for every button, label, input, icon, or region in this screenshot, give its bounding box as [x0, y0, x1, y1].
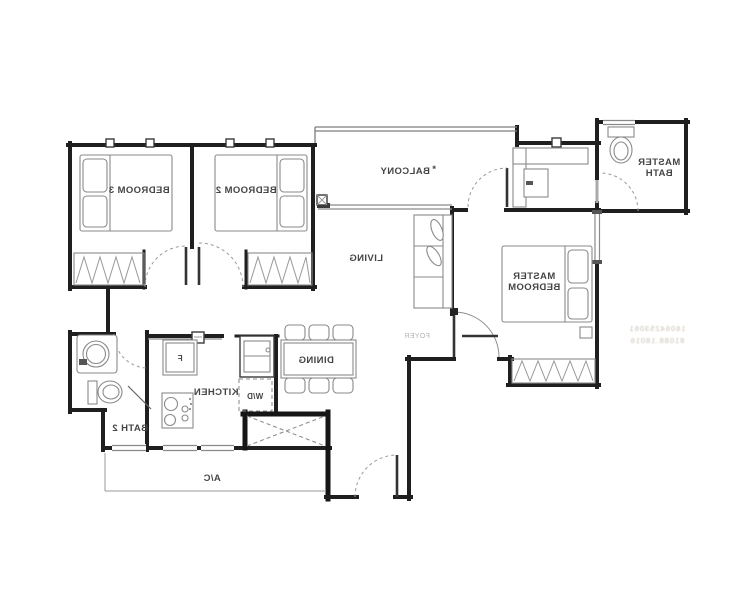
room-bedroom2: BEDROOM 2	[215, 155, 312, 285]
washer-dryer-icon: W/D	[239, 379, 272, 411]
label-fridge: F	[177, 354, 182, 363]
floorplan-page: BEDROOM 3 BEDROOM 2 BALCONY * LIVING	[0, 0, 732, 600]
label-ac-ledge: A/C	[203, 473, 221, 484]
balcony-asterisk: *	[432, 164, 436, 175]
fridge-icon: F	[163, 340, 197, 375]
room-master-bath: MASTER BATH	[608, 127, 680, 179]
sofa-icon	[414, 215, 452, 308]
label-bath2: BATH 2	[112, 423, 148, 434]
floorplan-svg: BEDROOM 3 BEDROOM 2 BALCONY * LIVING	[0, 0, 732, 600]
label-kitchen: KITCHEN	[193, 387, 238, 398]
watermark-line1: 16064253061	[629, 324, 686, 333]
wardrobe-icon	[512, 359, 595, 383]
watermark-line2: 81088.18016	[630, 336, 685, 345]
label-master-bedroom-line2: BEDROOM	[508, 282, 560, 293]
room-living: LIVING	[349, 215, 452, 308]
label-foyer: FOYER	[404, 333, 430, 340]
room-bath2: BATH 2	[77, 335, 148, 434]
toilet-icon	[88, 381, 122, 404]
ac-ledge: A/C	[105, 453, 326, 491]
toilet-icon	[608, 127, 634, 163]
foyer: FOYER	[404, 333, 430, 340]
label-bedroom3: BEDROOM 3	[108, 185, 169, 196]
sliding-door	[317, 203, 452, 209]
room-bedroom3: BEDROOM 3	[74, 155, 172, 285]
label-balcony: BALCONY	[380, 166, 430, 177]
label-bedroom2: BEDROOM 2	[215, 185, 276, 196]
label-dining: DINING	[298, 355, 334, 366]
kitchen-sink-icon	[240, 336, 274, 377]
label-master-bath-line1: MASTER	[638, 157, 681, 168]
room-dining: DINING	[281, 325, 356, 393]
stove-icon	[162, 393, 193, 428]
household-shelter	[247, 416, 325, 446]
label-master-bedroom-line1: MASTER	[513, 271, 556, 282]
basin-icon	[77, 335, 117, 373]
wardrobe-icon	[74, 253, 144, 285]
watermark: 16064253061 81088.18016	[629, 324, 686, 345]
vanity-area	[513, 148, 588, 207]
label-living: LIVING	[349, 253, 383, 264]
room-master-bedroom: MASTER BEDROOM	[502, 246, 595, 383]
wardrobe-icon	[248, 253, 312, 285]
floor-trap-icon	[317, 195, 327, 205]
label-washer-dryer: W/D	[247, 392, 263, 401]
label-master-bath-line2: BATH	[645, 168, 672, 179]
balcony-railing	[315, 127, 517, 143]
basin-icon	[524, 169, 548, 197]
room-balcony: BALCONY *	[380, 164, 436, 177]
